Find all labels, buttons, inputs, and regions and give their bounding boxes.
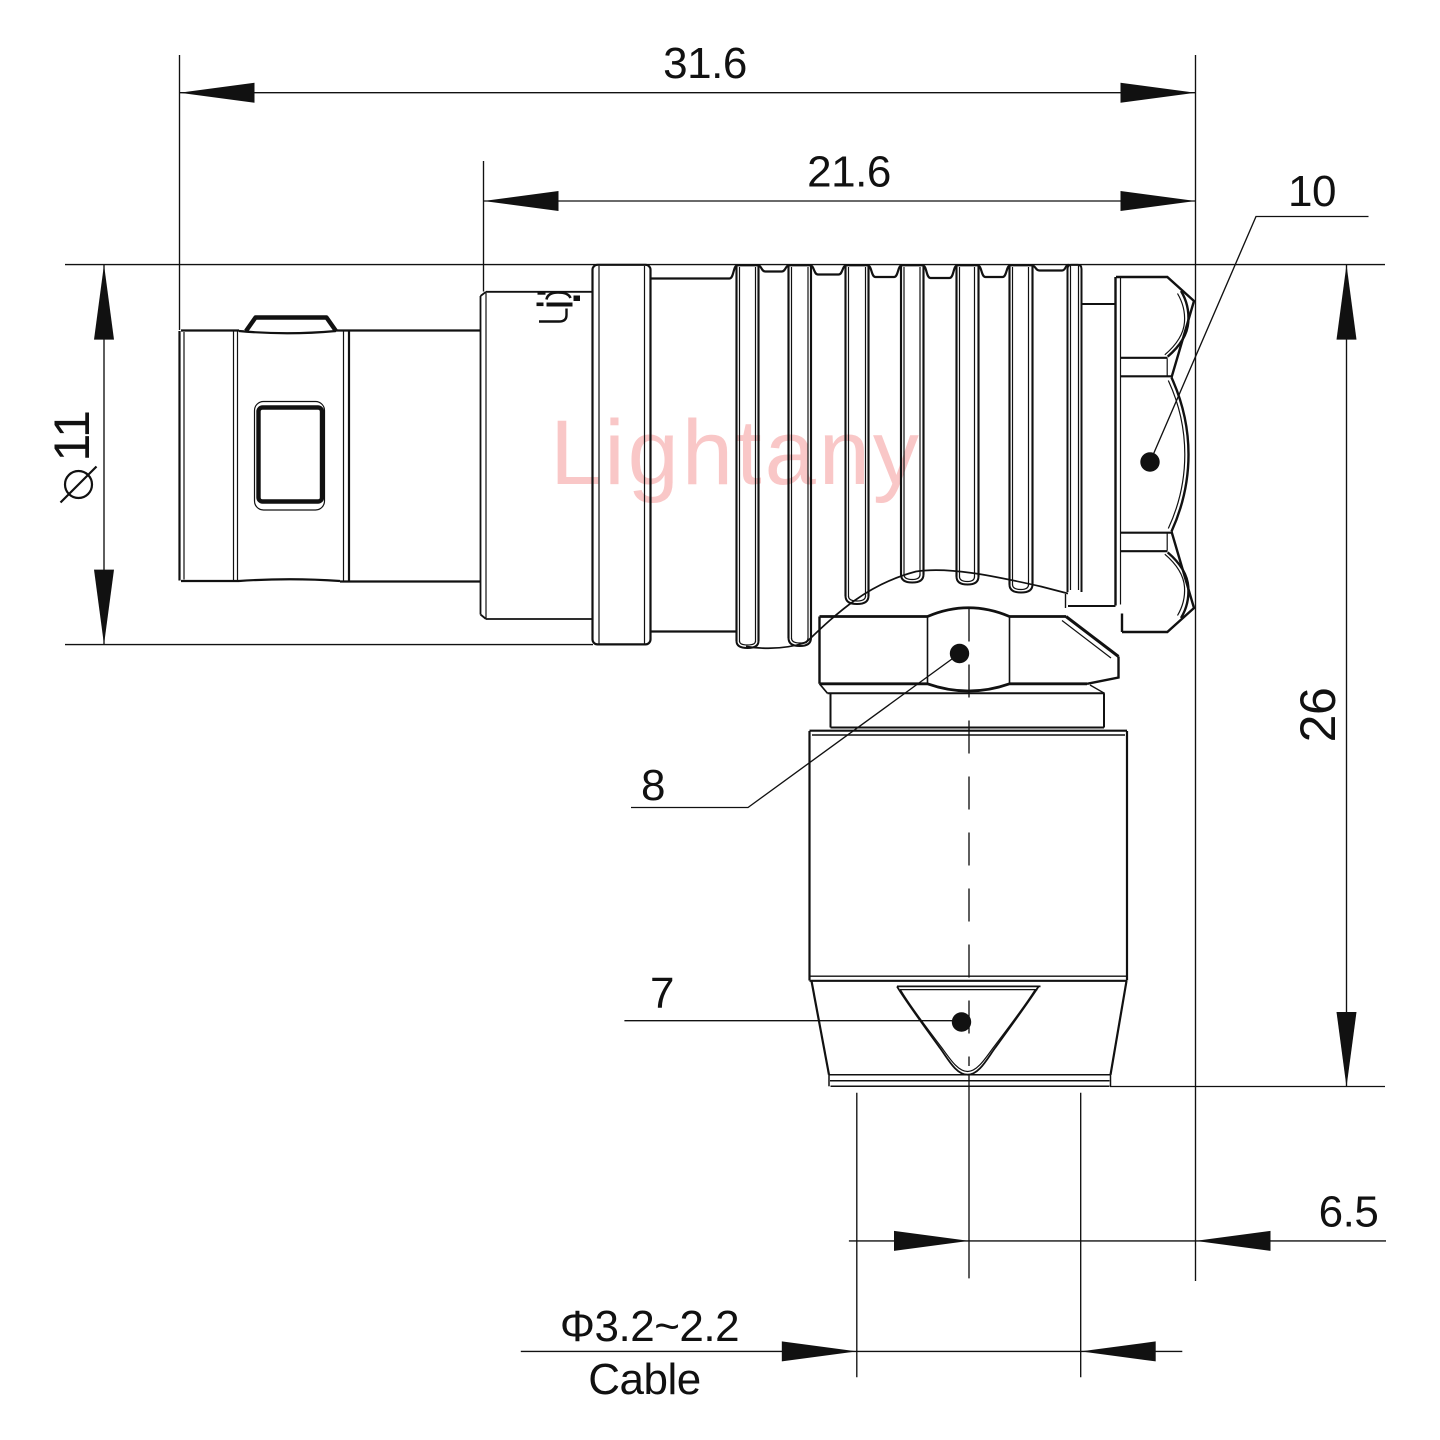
svg-text:10: 10 — [1288, 167, 1336, 216]
svg-text:Φ3.2~2.2: Φ3.2~2.2 — [560, 1302, 739, 1351]
svg-text:Cable: Cable — [588, 1355, 700, 1404]
svg-text:21.6: 21.6 — [807, 147, 891, 196]
svg-text:7: 7 — [650, 969, 674, 1018]
svg-text:8: 8 — [641, 761, 665, 810]
svg-text:6.5: 6.5 — [1319, 1188, 1379, 1237]
svg-text:11: 11 — [44, 411, 100, 462]
svg-text:31.6: 31.6 — [663, 39, 747, 88]
svg-text:26: 26 — [1290, 688, 1346, 743]
